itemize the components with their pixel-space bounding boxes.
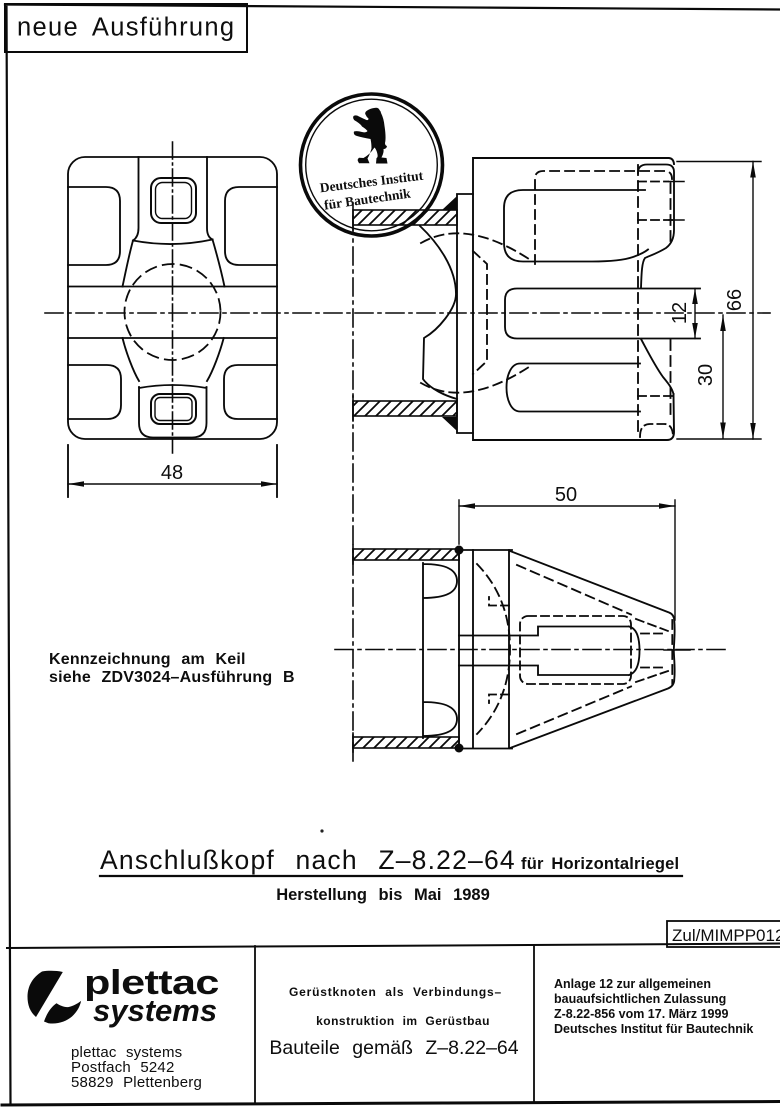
svg-text:48: 48 [161, 462, 183, 484]
svg-text:systems: systems [93, 993, 217, 1028]
svg-text:Zul/MIMPP012: Zul/MIMPP012 [672, 926, 780, 945]
svg-text:konstruktion im Gerüstbau: konstruktion im Gerüstbau [316, 1014, 490, 1028]
svg-text:30: 30 [695, 364, 717, 386]
svg-text:Kennzeichnung am Keil: Kennzeichnung am Keil [49, 651, 246, 668]
svg-text:Deutsches Institut für Bautech: Deutsches Institut für Bautechnik [554, 1022, 753, 1036]
svg-text:siehe ZDV3024–Ausführung B: siehe ZDV3024–Ausführung B [49, 669, 295, 686]
svg-text:66: 66 [724, 289, 746, 311]
svg-text:58829 Plettenberg: 58829 Plettenberg [71, 1074, 202, 1091]
svg-text:Bauteile gemäß Z–8.22–64: Bauteile gemäß Z–8.22–64 [269, 1037, 518, 1059]
svg-text:Herstellung bis Mai 1989: Herstellung bis Mai 1989 [276, 886, 490, 904]
svg-text:Gerüstknoten als Verbindungs–: Gerüstknoten als Verbindungs– [289, 985, 502, 999]
svg-text:12: 12 [669, 302, 691, 324]
svg-text:bauaufsichtlichen Zulassung: bauaufsichtlichen Zulassung [554, 992, 726, 1006]
svg-text:für Horizontalriegel: für Horizontalriegel [521, 855, 679, 873]
svg-text:Anschlußkopf nach Z–8.22–64: Anschlußkopf nach Z–8.22–64 [100, 845, 516, 875]
svg-text:Anlage 12 zur allgemeinen: Anlage 12 zur allgemeinen [554, 977, 711, 991]
svg-text:Z-8.22-856 vom 17. März 1999: Z-8.22-856 vom 17. März 1999 [554, 1007, 728, 1021]
svg-text:50: 50 [555, 484, 577, 506]
svg-text:neue Ausführung: neue Ausführung [17, 14, 235, 42]
